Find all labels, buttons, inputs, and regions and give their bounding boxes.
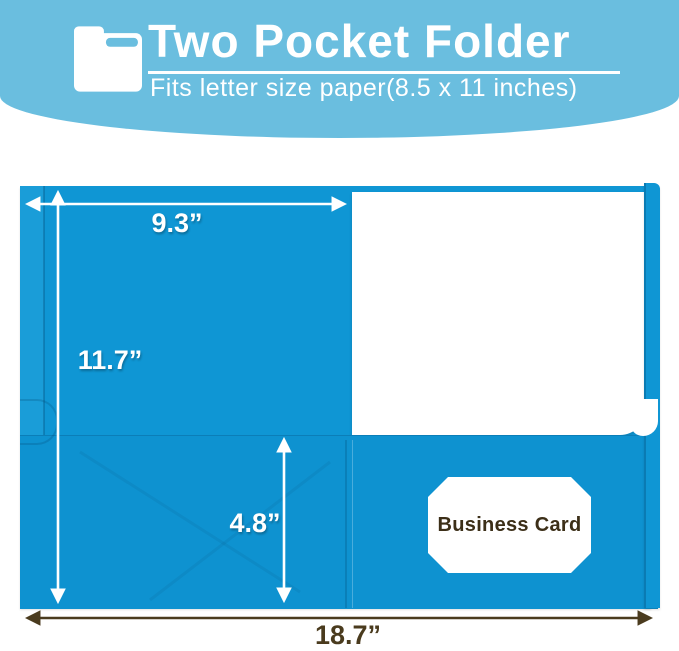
left-thumb-notch (20, 399, 58, 445)
paper-corner-curl (630, 399, 658, 436)
header-banner: Two Pocket Folder Fits letter size paper… (0, 0, 679, 138)
pocket-center-seam-highlight (352, 440, 353, 608)
label-folder-height: 11.7” (45, 345, 175, 376)
folder-right-edge (644, 183, 660, 608)
folder-icon (74, 26, 142, 92)
page-subtitle: Fits letter size paper(8.5 x 11 inches) (150, 74, 670, 103)
label-pocket-depth: 4.8” (190, 508, 320, 539)
business-card-slot: Business Card (428, 477, 591, 573)
label-pocket-width: 9.3” (112, 208, 242, 239)
letter-paper (352, 192, 646, 435)
label-total-width: 18.7” (283, 620, 413, 651)
pocket-center-seam (345, 440, 347, 608)
business-card-label: Business Card (438, 514, 582, 537)
page-title: Two Pocket Folder (148, 14, 668, 68)
